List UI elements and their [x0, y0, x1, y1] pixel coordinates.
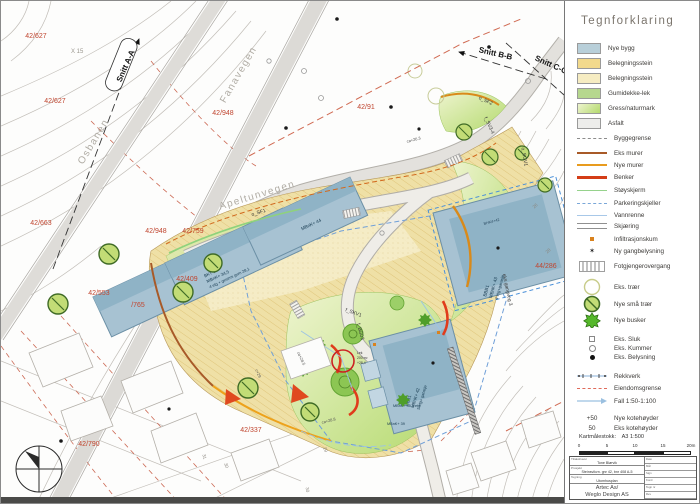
north-compass-icon [16, 446, 62, 492]
parcel-label: 42/948 [145, 228, 167, 235]
legend-label: Vannrenne [614, 212, 644, 219]
fall-arrow-icon [577, 395, 607, 407]
title-block-row: Tegning Utomhusplan [570, 475, 644, 484]
scale-tick: 15 [660, 443, 665, 448]
parcel-label: /765 [131, 302, 145, 309]
legend-title: Tegnforklaring [581, 15, 674, 27]
survey-point-label: X 15 [71, 49, 84, 55]
legend-label: Eiendomsgrense [614, 385, 661, 392]
legend-panel: Tegnforklaring Nye bygg Belegningsstein … [564, 1, 700, 504]
title-block-field: Kontr [645, 478, 696, 485]
parcel-label: 42/948 [212, 110, 234, 117]
parcel-label: 42/627 [25, 33, 47, 40]
legend-swatch-gress [577, 103, 601, 114]
scale-bar: 0 5 10 15 20m [579, 444, 691, 456]
parcel-label: 42/790 [78, 441, 100, 448]
eks-belysning-icon [577, 351, 607, 363]
legend-line-benker [577, 171, 607, 183]
legend-line-parkeringskjeller [577, 197, 607, 209]
gangbelysning-icon: ✶ [577, 245, 607, 257]
eks-traer-icon [577, 281, 607, 293]
legend-label: Byggegrense [614, 135, 651, 142]
playground-note-line: Lek [357, 351, 363, 355]
nye-smaa-traer-icon [577, 298, 607, 310]
legend-label: Gumidekke-lek [608, 90, 650, 97]
playground-note-line: +28,4 [357, 361, 366, 365]
title-block-field: Mål [645, 464, 696, 471]
legend-label: Fall 1:50-1:100 [614, 398, 656, 405]
legend-line-eks-murer [577, 147, 607, 159]
eks-kote-sample: 50 [577, 422, 607, 434]
legend-label: Parkeringskjeller [614, 200, 661, 207]
title-block-row: Prosjekt Steinsvikvn. gnr 42, bnr 408 A-… [570, 466, 644, 475]
legend-swatch-belegningsstein-2 [577, 73, 601, 84]
legend-label: Gress/naturmark [608, 105, 655, 112]
title-block-row: Tiltakshaver Tone Blørvik [570, 457, 644, 466]
eiendomsgrense-icon [577, 382, 607, 394]
title-block-firm: Artec As/ Weglo Design AS [570, 484, 644, 499]
scale-tick: 10 [632, 443, 637, 448]
playground-note-line: 200 m² [357, 356, 368, 360]
legend-label: Nye små trær [614, 301, 652, 308]
infiltrasjonskum-icon [577, 233, 607, 245]
rekkverk-icon [577, 370, 607, 382]
parcel-label: 42/409 [176, 276, 198, 283]
legend-line-nye-murer [577, 159, 607, 171]
legend-label: Skjæring [614, 223, 639, 230]
legend-line-skjaering [577, 220, 607, 232]
title-block-field: Tegn nr [645, 485, 696, 492]
legend-label: Eks. trær [614, 284, 640, 291]
parcel-label: 42/759 [182, 228, 204, 235]
title-block-field: Dato [645, 457, 696, 464]
scale-value: A3 1:500 [622, 434, 644, 440]
building-label: MBnK+ 39 [387, 422, 405, 426]
bottom-strip [1, 497, 564, 504]
legend-label: Ny gangbelysning [614, 248, 664, 255]
legend-label: Rekkverk [614, 373, 640, 380]
title-block: Tiltakshaver Tone Blørvik Prosjekt Stein… [569, 456, 697, 500]
title-block-value: Steinsvikvn. gnr 42, bnr 408 A-5 [570, 470, 644, 474]
scale-caption: Kartmålestokk: [579, 434, 616, 440]
legend-swatch-nye-bygg [577, 43, 601, 54]
building-label: MBnK+ 45 5 etg [393, 404, 420, 408]
legend-line-stoyskjerm [577, 184, 607, 196]
parcel-label: 42/337 [240, 427, 262, 434]
nye-busker-icon [577, 314, 607, 326]
scale-tick: 5 [606, 443, 609, 448]
legend-label: Nye kotehøyder [614, 415, 658, 422]
legend-line-byggegrense [577, 132, 607, 144]
legend-label: Eks kotehøyder [614, 425, 658, 432]
legend-label: Belegningsstein [608, 60, 652, 67]
legend-label: Benker [614, 174, 634, 181]
title-block-value: Utomhusplan [570, 479, 644, 483]
legend-label: Nye busker [614, 317, 646, 324]
site-plan-sheet: BKT 1 MBnK+ 34,5 4 etg + gesims gum 28,1… [0, 0, 700, 504]
legend-label: Støyskjerm [614, 187, 646, 194]
title-block-value: Tone Blørvik [570, 461, 644, 465]
parcel-label: 42/627 [44, 98, 66, 105]
legend-label: Fotgjengerovergang [614, 263, 670, 270]
firm-name-line: Weglo Design AS [585, 492, 628, 498]
fotgjengerovergang-icon [577, 260, 607, 272]
legend-label: Nye murer [614, 162, 643, 169]
parcel-label: 42/663 [30, 220, 52, 227]
legend-label: Eks. Belysning [614, 354, 655, 361]
title-block-field: Sign [645, 471, 696, 478]
legend-swatch-gumidekke [577, 88, 601, 99]
legend-label: Belegningsstein [608, 75, 652, 82]
parcel-label: 42/91 [357, 104, 375, 111]
map-drawing: BKT 1 MBnK+ 34,5 4 etg + gesims gum 28,1… [1, 1, 564, 504]
legend-label: Asfalt [608, 120, 624, 127]
legend-label: Eks murer [614, 150, 643, 157]
map-scale-caption: Kartmålestokk: A3 1:500 [579, 434, 644, 440]
parcel-label: 42/553 [88, 290, 110, 297]
legend-swatch-belegningsstein [577, 58, 601, 69]
legend-label: Infiltrasjonskum [614, 236, 658, 243]
parcel-label: 44/286 [535, 263, 557, 270]
title-block-field: Rev [645, 492, 696, 499]
legend-label: Nye bygg [608, 45, 635, 52]
legend-swatch-asfalt [577, 118, 601, 129]
site-plan-svg: BKT 1 MBnK+ 34,5 4 etg + gesims gum 28,1… [1, 1, 564, 504]
scale-tick: 20m [687, 443, 696, 448]
scale-tick: 0 [578, 443, 581, 448]
